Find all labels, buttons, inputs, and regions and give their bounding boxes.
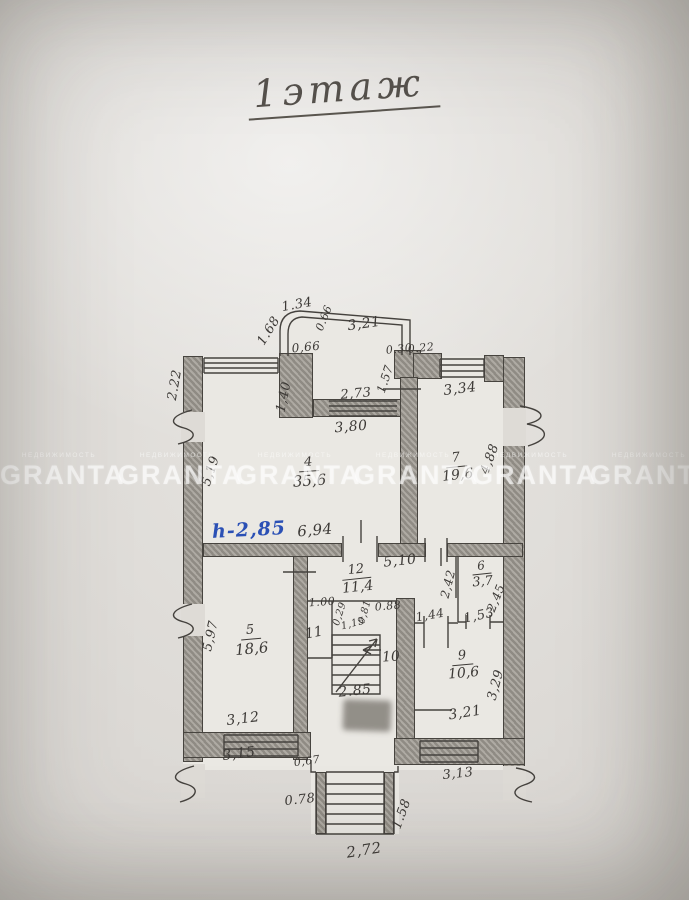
room-label-11: 11 (304, 624, 324, 643)
room-area: 19,6 (441, 466, 474, 487)
dimension-label: 3,80 (334, 418, 368, 437)
watermark-brand: GRANTA (590, 460, 689, 490)
wall (400, 377, 418, 544)
redacted-area (342, 699, 391, 732)
dimension-label: 0,66 (291, 339, 321, 356)
room-number: 10 (382, 648, 401, 665)
wall (484, 355, 504, 382)
room-label-12: 1211,4 (340, 562, 374, 599)
watermark-granta: НЕДВИЖИМОСТЬGRANTA (590, 452, 689, 502)
watermark-subtext: НЕДВИЖИМОСТЬ (590, 452, 689, 460)
wall (293, 556, 308, 760)
wall-break-gap (503, 766, 526, 800)
watermark-brand: GRANTA (0, 460, 125, 490)
wall (396, 598, 415, 739)
ceiling-height-note: h-2,85 (211, 517, 286, 543)
dimension-label: 0.88 (374, 598, 402, 613)
room-label-6: 63,7 (470, 558, 494, 591)
wall-break-gap (181, 604, 205, 636)
room-number: 9 (451, 648, 473, 666)
room-number: 4 (298, 455, 319, 472)
room-area: 10,6 (447, 664, 480, 684)
room-area: 11,4 (341, 578, 374, 599)
room-label-10: 10 (382, 648, 401, 665)
room-label-9: 910,6 (446, 648, 480, 684)
wall (413, 353, 442, 379)
floor-title: 1этаж (246, 59, 441, 120)
room-label-4: 435,6 (291, 455, 327, 492)
room-area: 18,6 (234, 638, 269, 660)
dimension-label: 2,73 (340, 385, 372, 403)
dimension-label: 0.78 (284, 791, 316, 809)
room-number: 11 (304, 624, 324, 643)
room-label-7: 719,6 (440, 450, 474, 487)
watermark-subtext: НЕДВИЖИМОСТЬ (0, 452, 118, 460)
wall-break-gap (181, 412, 205, 442)
room-number: 5 (239, 623, 261, 641)
room-label-5: 518,6 (233, 622, 269, 659)
dimension-label: 3,13 (442, 765, 474, 783)
room-area: 35,6 (292, 470, 327, 491)
dimension-label: 1.00 (308, 595, 335, 610)
room-area: 3,7 (472, 573, 494, 591)
dimension-label: 6,94 (297, 519, 334, 540)
wall (313, 399, 413, 417)
floor-plan-photo: 1этаж h-2,85 1.681.340.663,210,660.300.2… (0, 0, 689, 900)
watermark-granta: НЕДВИЖИМОСТЬGRANTA (0, 452, 118, 502)
wall (203, 543, 342, 557)
dimension-label: 2,72 (345, 838, 383, 861)
dimension-label: 0.22 (407, 340, 435, 356)
wall-break-gap (503, 408, 526, 446)
wall (447, 543, 523, 557)
wall (316, 772, 326, 834)
wall (394, 738, 525, 765)
wall-break-gap (181, 764, 205, 798)
